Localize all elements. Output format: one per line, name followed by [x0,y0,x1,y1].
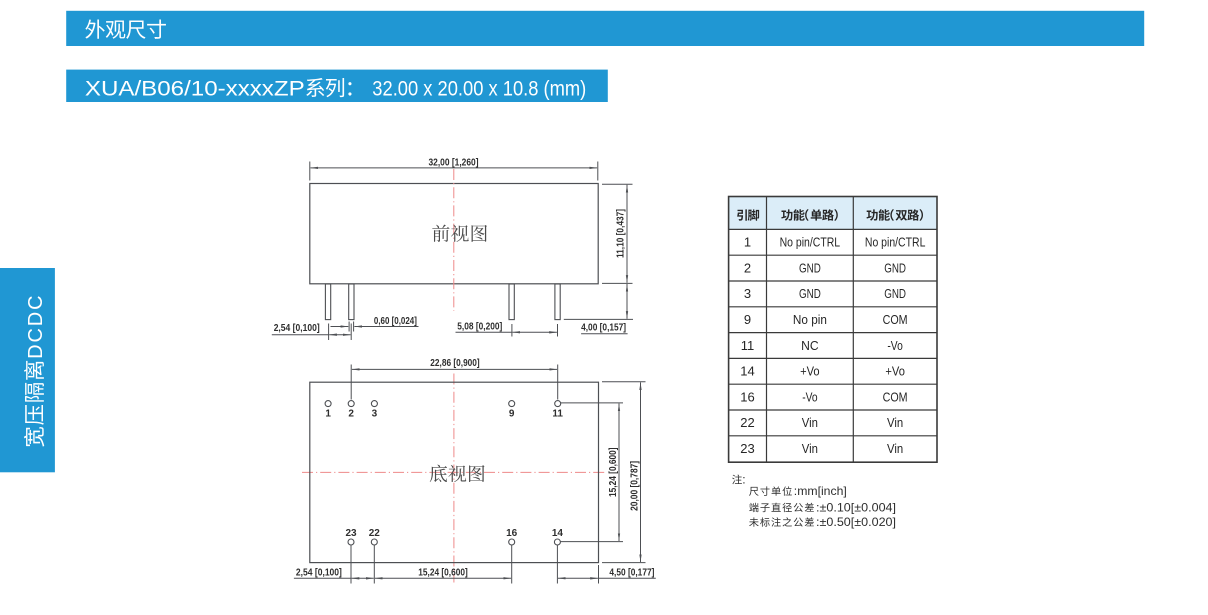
svg-text:XUA/B06/10-xxxxZP: XUA/B06/10-xxxxZP [85,77,305,101]
svg-text:GND: GND [884,261,906,276]
svg-text:Vin: Vin [802,441,818,456]
svg-text:3: 3 [744,286,751,301]
svg-text:3: 3 [372,409,378,420]
svg-text:2,54 [0,100]: 2,54 [0,100] [274,323,320,334]
svg-text:-Vo: -Vo [887,338,902,353]
svg-text:Vin: Vin [887,415,903,430]
svg-text:DCDC: DCDC [25,294,47,359]
svg-text::mm[inch]: :mm[inch] [794,484,847,498]
svg-text:-Vo: -Vo [802,390,817,405]
svg-text:2: 2 [348,409,354,420]
svg-text:4,00 [0,157]: 4,00 [0,157] [581,322,626,333]
svg-text:COM: COM [883,390,908,405]
svg-text:+Vo: +Vo [800,364,820,379]
svg-text:15,24 [0,600]: 15,24 [0,600] [608,447,619,497]
svg-text:14: 14 [552,528,564,539]
svg-text:GND: GND [799,261,821,276]
svg-text:23: 23 [345,528,357,539]
svg-text:14: 14 [740,364,754,379]
svg-text::±0.50[±0.020]: :±0.50[±0.020] [816,515,896,529]
svg-text:Vin: Vin [802,415,818,430]
svg-text:32,00 [1,260]: 32,00 [1,260] [429,157,479,168]
svg-text:5,08 [0,200]: 5,08 [0,200] [457,321,502,332]
svg-text::: : [742,473,745,487]
svg-text:22,86 [0,900]: 22,86 [0,900] [430,358,479,369]
svg-text:9: 9 [509,409,515,420]
svg-text:2,54 [0,100]: 2,54 [0,100] [296,568,342,579]
svg-text:15,24 [0,600]: 15,24 [0,600] [418,568,468,579]
svg-text:1: 1 [744,235,751,250]
svg-text:+Vo: +Vo [885,364,905,379]
svg-text::±0.10[±0.004]: :±0.10[±0.004] [816,500,896,514]
svg-text:0,60 [0,024]: 0,60 [0,024] [374,316,417,327]
svg-text:9: 9 [744,312,751,327]
svg-text:Vin: Vin [887,441,903,456]
svg-text:32.00 x 20.00 x 10.8 (mm): 32.00 x 20.00 x 10.8 (mm) [372,78,586,101]
svg-text:16: 16 [506,528,518,539]
svg-text:16: 16 [740,390,754,405]
svg-text:GND: GND [799,286,821,301]
svg-text:1: 1 [325,409,331,420]
svg-text:COM: COM [883,312,908,327]
svg-text:2: 2 [744,261,751,276]
svg-text:No pin/CTRL: No pin/CTRL [780,235,841,250]
svg-text:22: 22 [740,415,754,430]
svg-text:11: 11 [552,409,563,420]
svg-text:No pin/CTRL: No pin/CTRL [865,235,926,250]
svg-text:20,00 [0,787]: 20,00 [0,787] [629,461,640,511]
svg-text:23: 23 [740,441,754,456]
svg-text:11: 11 [741,338,755,353]
svg-text:22: 22 [369,528,381,539]
svg-text:NC: NC [801,338,819,353]
svg-text:11,10 [0,437]: 11,10 [0,437] [616,209,627,258]
svg-text:GND: GND [884,286,906,301]
svg-text:No pin: No pin [793,312,827,327]
svg-text:4,50 [0,177]: 4,50 [0,177] [609,568,654,579]
